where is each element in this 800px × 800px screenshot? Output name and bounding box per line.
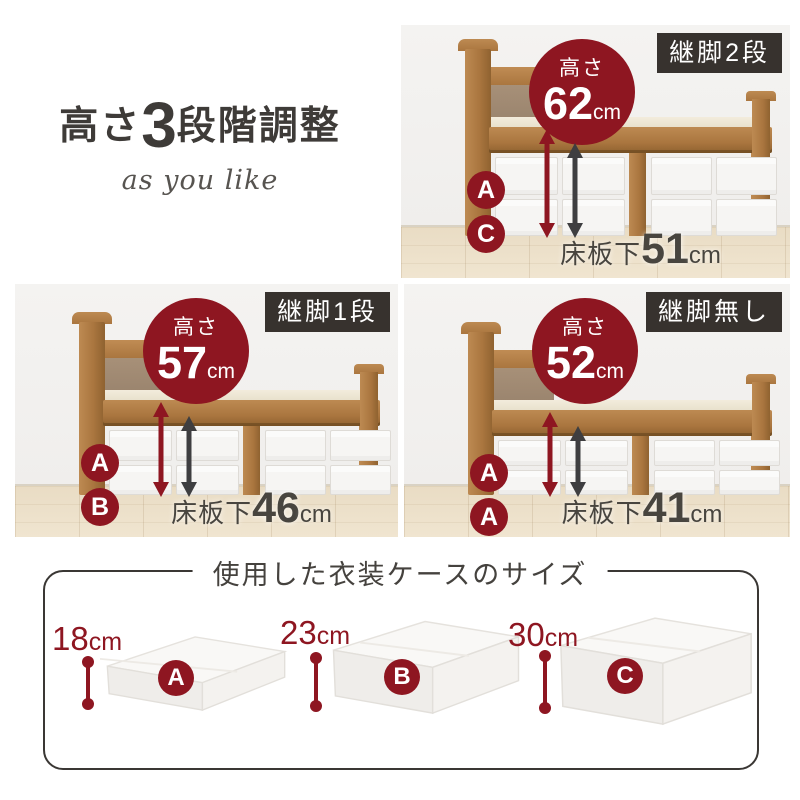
storage-drawer bbox=[330, 430, 391, 461]
case-label-badge: C bbox=[607, 658, 643, 694]
case-tag: B bbox=[81, 488, 119, 526]
underbed-clearance: 床板下41cm bbox=[494, 484, 790, 533]
case-tag: A bbox=[470, 498, 508, 536]
underbed-label: 床板下 bbox=[562, 498, 643, 528]
page-title: 高さ3段階調整 bbox=[0, 88, 400, 162]
case-measure-line bbox=[314, 658, 318, 706]
height-number: 62 bbox=[543, 78, 593, 129]
cases-section-title: 使用した衣装ケースのサイズ bbox=[193, 553, 608, 592]
storage-drawer bbox=[719, 440, 780, 466]
underbed-arrow-dark bbox=[567, 143, 583, 238]
height-unit: cm bbox=[207, 360, 235, 383]
underbed-label: 床板下 bbox=[171, 498, 252, 528]
case-box-a bbox=[100, 624, 292, 734]
case-height-text: 23cm bbox=[280, 614, 350, 652]
case-height-unit: cm bbox=[89, 628, 122, 656]
underbed-arrow-red bbox=[153, 402, 169, 497]
height-label: 高さ bbox=[173, 316, 219, 339]
title-number: 3 bbox=[141, 89, 177, 161]
height-unit: cm bbox=[596, 360, 624, 383]
bed-rail bbox=[489, 127, 772, 153]
title-suffix: 段階調整 bbox=[177, 105, 341, 148]
variant-badge: 継脚1段 bbox=[265, 292, 390, 332]
case-tag: A bbox=[467, 171, 505, 209]
underbed-value: 46 bbox=[252, 484, 300, 532]
height-label: 高さ bbox=[559, 57, 605, 80]
underbed-arrow-dark bbox=[181, 416, 197, 497]
arrow-shaft bbox=[545, 142, 550, 225]
bed-boards bbox=[494, 400, 766, 410]
height-value: 57cm bbox=[157, 339, 235, 386]
height-label: 高さ bbox=[562, 316, 608, 339]
height-value: 62cm bbox=[543, 80, 621, 127]
bed-leg bbox=[629, 153, 646, 236]
storage-drawer bbox=[654, 440, 715, 466]
case-box-b bbox=[325, 612, 527, 736]
underbed-value: 41 bbox=[643, 484, 691, 532]
product-infographic: 高さ3段階調整 as you like bbox=[0, 0, 800, 800]
height-circle: 高さ 57cm bbox=[143, 298, 249, 404]
case-box-c bbox=[553, 610, 759, 742]
case-tag: A bbox=[470, 454, 508, 492]
storage-drawer bbox=[716, 157, 777, 195]
underbed-arrow-red bbox=[539, 129, 555, 238]
case-measure-line bbox=[543, 656, 547, 708]
arrow-shaft bbox=[576, 439, 581, 484]
panel-no-extension: 継脚無し 高さ 52cm A A 床板下41cm bbox=[404, 284, 790, 537]
underbed-unit: cm bbox=[300, 501, 332, 528]
variant-badge: 継脚2段 bbox=[657, 33, 782, 73]
height-value: 52cm bbox=[546, 339, 624, 386]
height-number: 52 bbox=[546, 337, 596, 388]
case-tag: A bbox=[81, 444, 119, 482]
height-unit: cm bbox=[593, 101, 621, 124]
underbed-clearance: 床板下51cm bbox=[491, 225, 790, 274]
underbed-label: 床板下 bbox=[560, 239, 641, 269]
height-number: 57 bbox=[157, 337, 207, 388]
case-height-text: 18cm bbox=[52, 620, 122, 658]
underbed-value: 51 bbox=[641, 225, 689, 273]
case-measure-line bbox=[86, 662, 90, 704]
variant-badge: 継脚無し bbox=[646, 292, 782, 332]
bed-boards bbox=[105, 390, 374, 400]
arrow-shaft bbox=[548, 425, 553, 484]
case-height-unit: cm bbox=[317, 622, 350, 650]
intro-block: 高さ3段階調整 as you like bbox=[0, 0, 400, 270]
case-label-badge: A bbox=[158, 660, 194, 696]
bed-boards bbox=[491, 117, 766, 127]
panel-one-extension: 継脚1段 高さ 57cm A B 床板下46cm bbox=[15, 284, 398, 537]
underbed-unit: cm bbox=[690, 501, 722, 528]
case-height-number: 23 bbox=[280, 614, 317, 651]
subtitle-script: as you like bbox=[0, 165, 400, 196]
bed-rail bbox=[492, 410, 772, 436]
height-circle: 高さ 52cm bbox=[532, 298, 638, 404]
case-height-unit: cm bbox=[545, 624, 578, 652]
arrow-shaft bbox=[159, 415, 164, 484]
underbed-clearance: 床板下46cm bbox=[105, 484, 398, 533]
arrow-shaft bbox=[573, 156, 578, 225]
underbed-unit: cm bbox=[689, 242, 721, 269]
underbed-arrow-dark bbox=[570, 426, 586, 497]
case-tag: C bbox=[467, 215, 505, 253]
storage-drawer bbox=[651, 157, 712, 195]
panel-two-extensions: 継脚2段 高さ 62cm A C 床板下51cm bbox=[401, 25, 790, 278]
case-height-text: 30cm bbox=[508, 616, 578, 654]
bed-rail bbox=[103, 400, 380, 426]
title-prefix: 高さ bbox=[59, 105, 141, 148]
case-height-number: 18 bbox=[52, 620, 89, 657]
case-label-badge: B bbox=[384, 659, 420, 695]
underbed-arrow-red bbox=[542, 412, 558, 497]
case-height-number: 30 bbox=[508, 616, 545, 653]
arrow-shaft bbox=[187, 429, 192, 484]
storage-drawer bbox=[265, 430, 326, 461]
